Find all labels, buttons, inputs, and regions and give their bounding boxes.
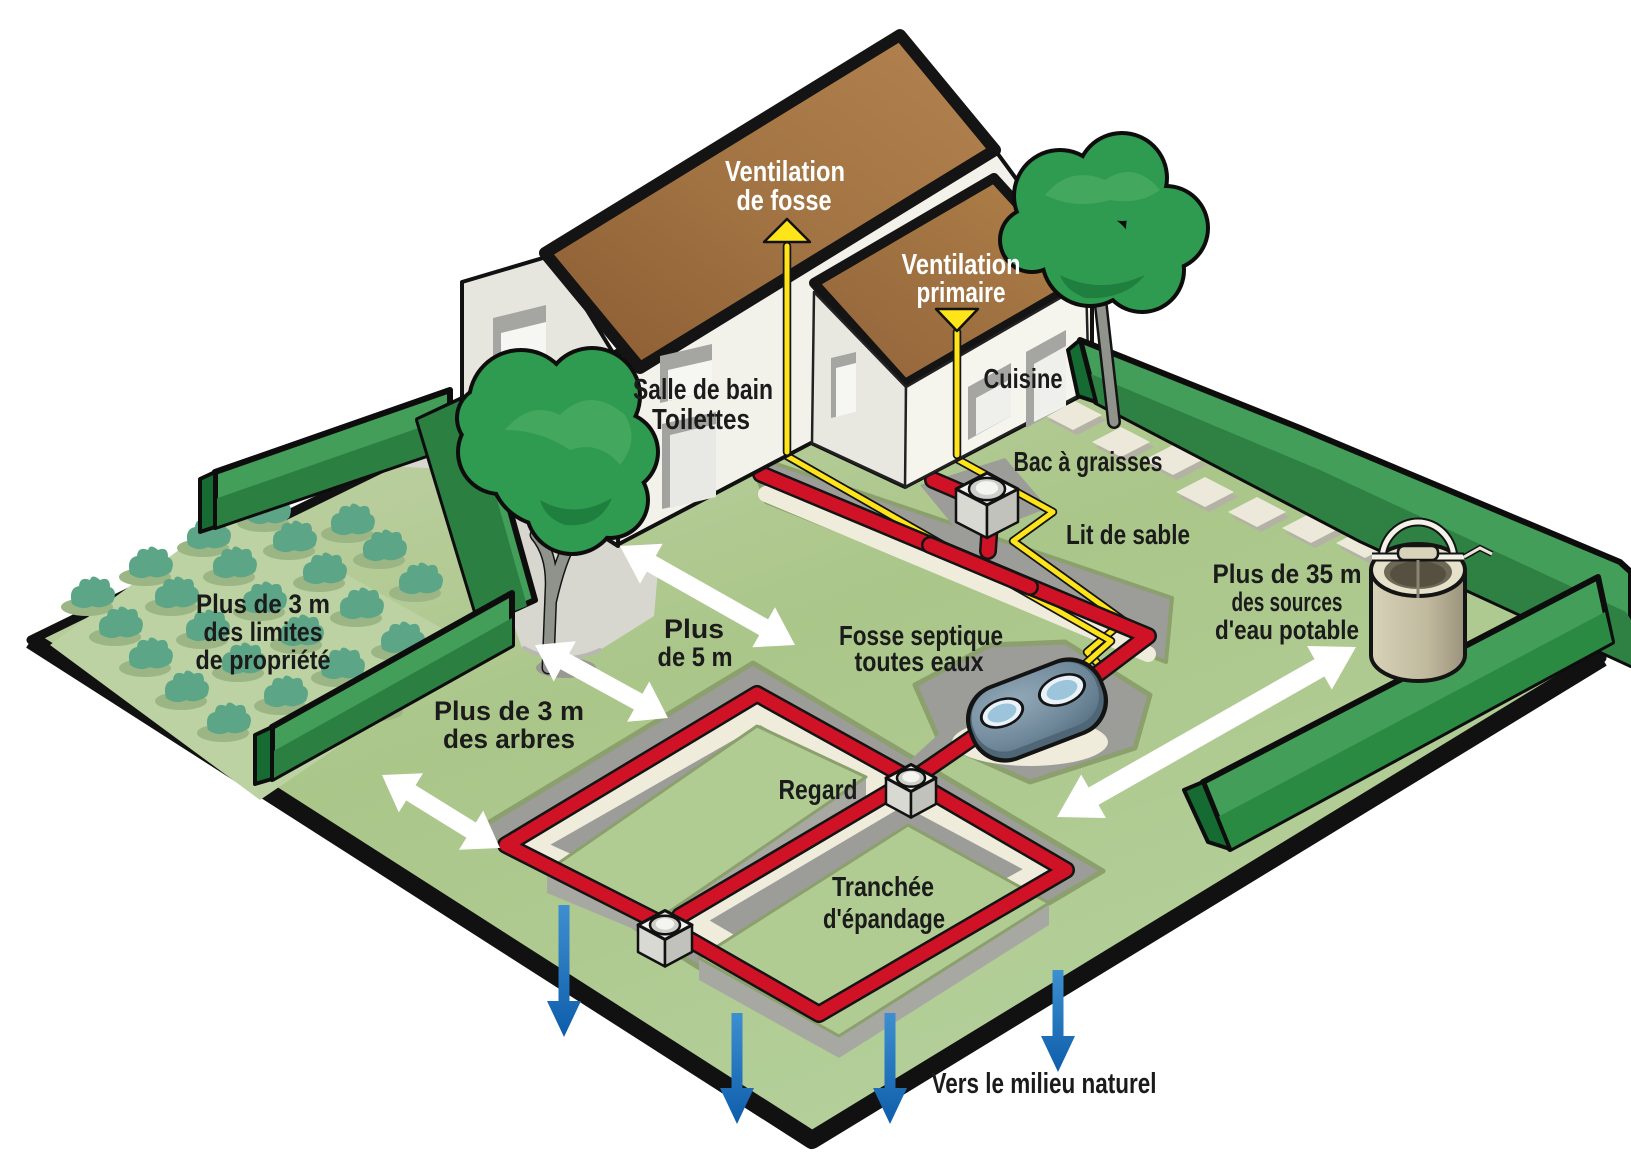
svg-text:Lit de sable: Lit de sable [1066, 519, 1190, 550]
svg-text:des limites: des limites [204, 617, 323, 647]
svg-text:Plus de 3 m: Plus de 3 m [434, 696, 584, 726]
svg-text:de 5 m: de 5 m [658, 642, 733, 672]
svg-text:primaire: primaire [917, 277, 1006, 309]
svg-text:Regard: Regard [779, 774, 858, 805]
svg-text:de propriété: de propriété [196, 645, 331, 675]
svg-text:Toilettes: Toilettes [652, 404, 750, 436]
svg-text:d'épandage: d'épandage [823, 903, 945, 934]
svg-text:Ventilation: Ventilation [725, 156, 845, 188]
svg-text:Bac à graisses: Bac à graisses [1014, 446, 1163, 477]
svg-text:de fosse: de fosse [737, 185, 832, 217]
svg-text:Plus de 3 m: Plus de 3 m [196, 589, 330, 619]
svg-text:Vers le milieu naturel: Vers le milieu naturel [932, 1068, 1157, 1100]
svg-text:des arbres: des arbres [443, 724, 575, 754]
svg-text:Cuisine: Cuisine [984, 363, 1063, 394]
svg-text:d'eau potable: d'eau potable [1215, 615, 1359, 645]
svg-text:des sources: des sources [1232, 587, 1343, 617]
svg-text:Plus de 35 m: Plus de 35 m [1213, 559, 1362, 589]
svg-text:Salle de bain: Salle de bain [633, 374, 773, 406]
svg-text:Plus: Plus [664, 614, 724, 644]
svg-text:Tranchée: Tranchée [832, 871, 934, 902]
svg-text:toutes eaux: toutes eaux [855, 646, 984, 677]
